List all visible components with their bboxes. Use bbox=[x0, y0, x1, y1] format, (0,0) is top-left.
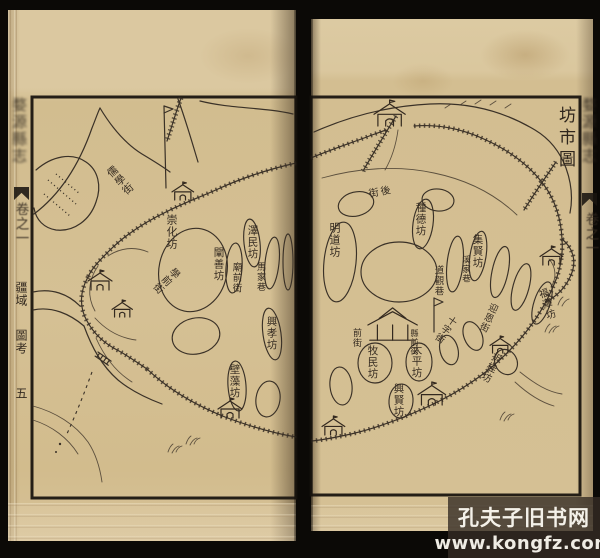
watermark-site-url: www.kongfz.com bbox=[434, 533, 600, 554]
left-folio-number: 五 bbox=[15, 387, 27, 400]
ward-label-xingxiao-fang: 興孝坊 bbox=[266, 316, 277, 351]
street-label-majia-xiang: 馬家巷 bbox=[255, 262, 264, 292]
kongfz-watermark: 孔夫子旧书网 www.kongfz.com bbox=[448, 497, 600, 558]
left-volume-label: 卷之一 bbox=[13, 202, 27, 246]
southwest-gate-right bbox=[322, 416, 345, 435]
ward-label-bizao-fang: 壁藻坊 bbox=[229, 364, 240, 399]
ward-label-chonghua-fang: 崇化坊 bbox=[166, 214, 177, 250]
left-section-upper: 疆域 bbox=[15, 281, 27, 307]
ward-label-zhongde-fang: 種德坊 bbox=[415, 202, 426, 237]
scanned-book-spread: 坊市圖 儒學街 崇化坊 澤民坊 闡善坊 廟前街 馬家巷 學前街 興孝坊 壁藻坊 … bbox=[0, 0, 600, 558]
right-volume-label: 卷之一 bbox=[583, 212, 597, 256]
street-label-daoguan-xiang: 道觀巷 bbox=[433, 265, 443, 297]
left-section-lower: 圖考 bbox=[15, 329, 27, 355]
ward-label-jixian-fang: 集賢坊 bbox=[472, 234, 483, 269]
south-gate-right bbox=[418, 382, 446, 405]
ward-label-zemin-fang: 澤民坊 bbox=[247, 225, 258, 260]
ward-label-mumin-fang: 牧民坊 bbox=[367, 345, 378, 380]
ward-label-xingxian-fang: 興賢坊 bbox=[393, 383, 404, 418]
ward-label-chanshan-fang: 闡善坊 bbox=[213, 247, 224, 282]
street-label-xijia-xiang: 溪家巷 bbox=[461, 255, 470, 284]
book-fold-gap bbox=[294, 0, 313, 558]
map-title: 坊市圖 bbox=[556, 106, 573, 172]
northwest-tower bbox=[172, 182, 194, 200]
street-label-qian-jie: 前街 bbox=[351, 328, 360, 348]
watermark-site-name: 孔夫子旧书网 bbox=[458, 502, 590, 532]
right-spine-title: 婺源縣志 bbox=[581, 97, 596, 165]
west-inner-tower bbox=[112, 300, 132, 317]
street-label-miaoqian-jie: 廟前街 bbox=[231, 262, 241, 294]
ward-label-mingdao-fang: 明道坊 bbox=[329, 222, 340, 258]
street-blocks bbox=[151, 130, 556, 419]
ward-label-taiping-fang: 太平坊 bbox=[411, 344, 422, 379]
left-spine-title: 婺源縣志 bbox=[11, 97, 26, 165]
